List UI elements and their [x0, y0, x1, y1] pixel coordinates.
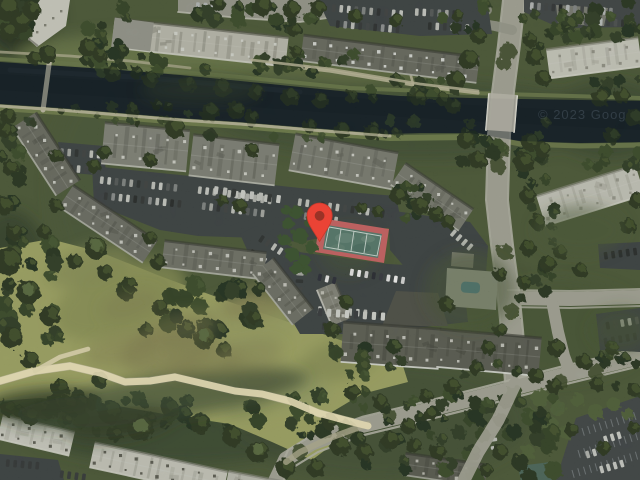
svg-text:© 2023 Goog: © 2023 Goog	[538, 107, 627, 122]
